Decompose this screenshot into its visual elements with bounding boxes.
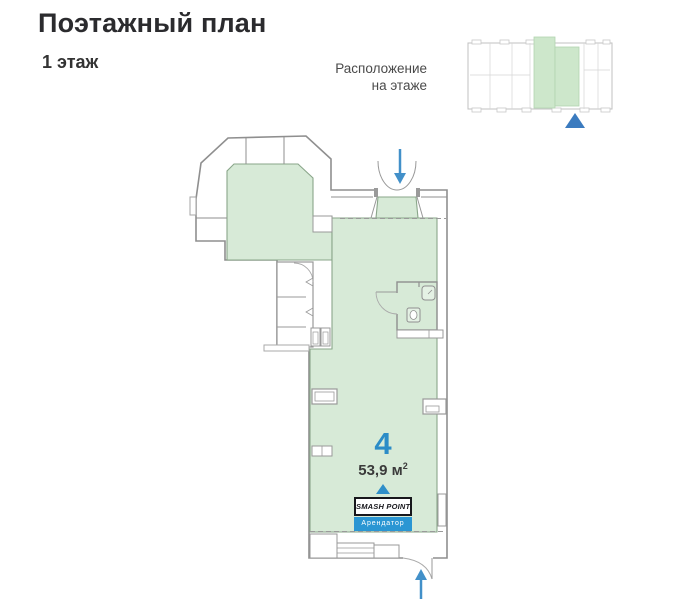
floor-plan-canvas [0, 0, 677, 600]
tenant-card: SMASH POINT Арендатор [354, 497, 412, 531]
arrow-down-icon [394, 149, 406, 184]
bathroom-shelf [397, 330, 443, 338]
left-pilaster [190, 197, 196, 215]
unit-area-value: 53,9 м [358, 462, 402, 479]
triangle-up-icon [376, 484, 390, 494]
arrow-up-icon [415, 569, 427, 599]
minimap-unit-highlight-left [534, 37, 555, 108]
triangle-up-icon [565, 113, 585, 128]
door-jamb [374, 188, 378, 197]
entrance-vestibule [376, 197, 418, 218]
outside-step [264, 345, 309, 351]
minimap-drawing [468, 37, 612, 128]
radiator [312, 389, 337, 404]
unit-area-sup: 2 [403, 461, 408, 471]
window-marker [438, 494, 446, 526]
wall-notch [313, 216, 332, 232]
tenant-role-badge: Арендатор [354, 517, 412, 531]
unit-area: 53,9 м2 [335, 461, 431, 479]
minimap-unit-highlight-right [555, 47, 579, 106]
unit-number: 4 [355, 426, 411, 462]
door-jamb [416, 188, 420, 197]
top-door-arc-left [378, 161, 397, 190]
tenant-logo: SMASH POINT [354, 497, 412, 516]
stairs [337, 543, 374, 558]
